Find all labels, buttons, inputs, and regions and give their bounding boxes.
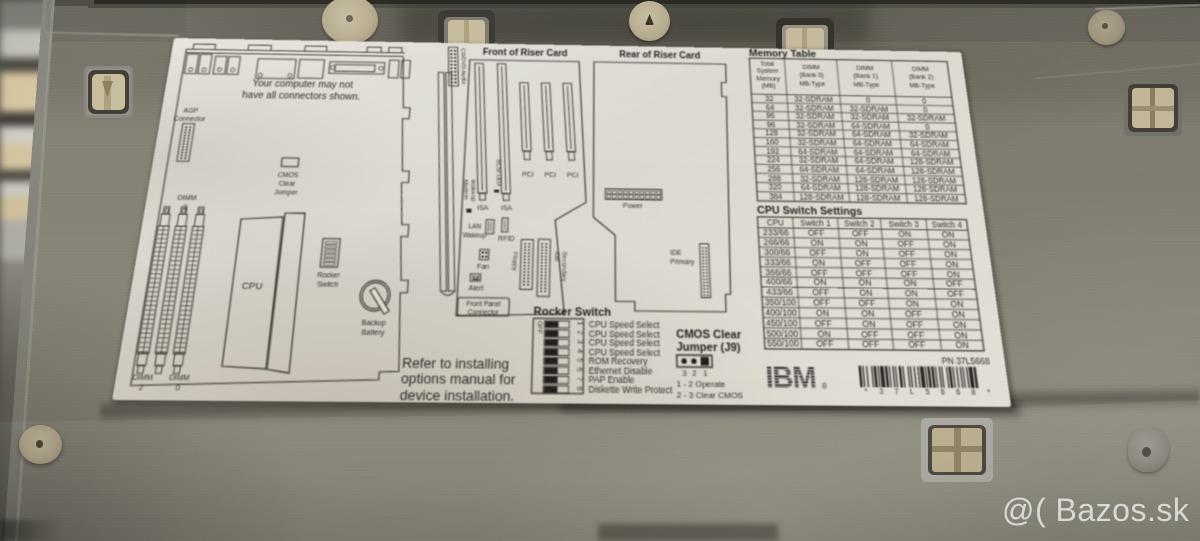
svg-text:OFF: OFF — [862, 339, 881, 350]
svg-text:ISA: ISA — [501, 205, 513, 213]
svg-text:ON: ON — [944, 249, 958, 259]
svg-text:have all connectors shown.: have all connectors shown. — [242, 90, 361, 102]
svg-text:SCSI LED: SCSI LED — [494, 159, 501, 186]
svg-text:ON: ON — [941, 230, 955, 240]
svg-text:64: 64 — [765, 103, 774, 112]
svg-text:OFF: OFF — [807, 228, 825, 238]
svg-text:233/66: 233/66 — [763, 228, 790, 238]
svg-text:PCI: PCI — [522, 171, 534, 178]
svg-text:2: 2 — [692, 370, 697, 378]
svg-text:ON: ON — [946, 269, 960, 279]
svg-text:500/100: 500/100 — [766, 328, 799, 339]
svg-text:1: 1 — [576, 321, 584, 326]
svg-text:OFF: OFF — [858, 298, 876, 308]
svg-text:300/66: 300/66 — [764, 247, 791, 257]
svg-text:Rear of Riser Card: Rear of Riser Card — [619, 50, 700, 61]
svg-text:CMOS Clear: CMOS Clear — [676, 329, 742, 342]
svg-text:2: 2 — [576, 330, 584, 335]
svg-text:400/66: 400/66 — [766, 277, 794, 287]
svg-text:7: 7 — [575, 377, 583, 382]
svg-text:(MB): (MB) — [761, 83, 776, 90]
svg-text:Fan: Fan — [477, 263, 490, 271]
svg-text:CPU: CPU — [241, 280, 263, 292]
svg-text:Battery: Battery — [361, 329, 386, 337]
svg-text:MB-Type: MB-Type — [799, 81, 826, 88]
svg-text:MB-Type: MB-Type — [853, 82, 880, 89]
svg-text:OFF: OFF — [904, 309, 923, 319]
svg-text:ON: ON — [813, 278, 827, 288]
svg-text:Jumper (J9): Jumper (J9) — [676, 341, 741, 355]
svg-text:®: ® — [822, 382, 828, 392]
svg-text:ON: ON — [858, 278, 872, 288]
svg-text:433/66: 433/66 — [766, 287, 794, 297]
svg-text:4: 4 — [575, 349, 583, 354]
svg-text:ON: ON — [812, 258, 826, 268]
svg-text:450/100: 450/100 — [766, 318, 799, 329]
svg-text:366/66: 366/66 — [765, 267, 792, 277]
svg-text:Floppy: Floppy — [511, 252, 518, 271]
svg-text:RFID: RFID — [498, 235, 515, 243]
svg-text:160: 160 — [765, 137, 779, 146]
svg-text:DIMM: DIMM — [911, 66, 929, 73]
svg-text:OFF: OFF — [898, 249, 916, 259]
svg-text:224: 224 — [766, 155, 780, 164]
svg-text:options manual for: options manual for — [400, 371, 515, 389]
svg-text:400/100: 400/100 — [765, 307, 798, 318]
svg-text:Jumper: Jumper — [274, 189, 299, 197]
svg-text:OFF: OFF — [851, 229, 869, 239]
svg-text:Wakeup: Wakeup — [462, 233, 487, 240]
svg-text:8: 8 — [575, 386, 583, 391]
svg-text:Rocker: Rocker — [317, 272, 341, 280]
svg-text:128-SDRAM: 128-SDRAM — [914, 194, 959, 204]
svg-text:333/66: 333/66 — [765, 257, 792, 267]
svg-text:Your computer may not: Your computer may not — [252, 78, 354, 89]
svg-text:System: System — [757, 68, 779, 75]
svg-text:Total: Total — [760, 61, 774, 68]
svg-text:AGP: AGP — [183, 107, 198, 114]
svg-text:Switch 3: Switch 3 — [888, 219, 919, 229]
svg-text:(Bank 0): (Bank 0) — [799, 72, 824, 79]
svg-text:ON: ON — [810, 238, 824, 248]
svg-text:Backup: Backup — [361, 319, 386, 327]
svg-text:96: 96 — [766, 120, 775, 129]
svg-text:DIMM: DIMM — [177, 195, 197, 203]
svg-text:128-SDRAM: 128-SDRAM — [855, 193, 900, 203]
svg-text:96: 96 — [766, 111, 775, 120]
svg-text:ON: ON — [859, 288, 873, 298]
svg-text:OFF: OFF — [812, 288, 830, 298]
svg-text:288: 288 — [768, 173, 782, 182]
svg-text:OFF: OFF — [945, 279, 963, 289]
svg-text:PCI: PCI — [544, 172, 556, 179]
svg-text:Clear: Clear — [278, 180, 296, 188]
svg-text:OFF: OFF — [809, 248, 827, 258]
svg-text:Alert: Alert — [468, 285, 483, 293]
svg-text:IDE: IDE — [553, 251, 560, 262]
svg-text:Front Panel: Front Panel — [466, 301, 501, 308]
svg-text:MB-Type: MB-Type — [909, 83, 936, 90]
svg-text:ON: ON — [905, 299, 919, 309]
svg-text:DIMM: DIMM — [132, 374, 153, 383]
svg-text:ON: ON — [904, 289, 918, 299]
svg-text:Front of Riser Card: Front of Riser Card — [483, 47, 568, 58]
svg-text:OFF: OFF — [861, 329, 880, 340]
svg-text:550/100: 550/100 — [767, 338, 800, 349]
svg-text:320: 320 — [768, 182, 782, 192]
svg-text:(Bank 1): (Bank 1) — [853, 73, 878, 80]
svg-text:192: 192 — [766, 146, 780, 155]
svg-text:ON: ON — [955, 340, 970, 351]
svg-text:ON: ON — [942, 240, 956, 250]
svg-text:Connector: Connector — [468, 310, 499, 317]
svg-text:Wakeup: Wakeup — [469, 180, 476, 202]
svg-text:3: 3 — [682, 370, 687, 378]
svg-text:Power: Power — [623, 202, 643, 210]
svg-text:PCI: PCI — [567, 172, 579, 179]
svg-text:OFF: OFF — [899, 259, 917, 269]
svg-text:OFF: OFF — [535, 321, 542, 335]
svg-text:ON: ON — [854, 239, 868, 249]
svg-text:384: 384 — [769, 192, 783, 202]
svg-text:256: 256 — [767, 164, 781, 173]
svg-text:OFF: OFF — [814, 318, 832, 329]
svg-text:Rocker Switch: Rocker Switch — [533, 306, 611, 319]
svg-text:0: 0 — [866, 96, 871, 105]
svg-text:device installation.: device installation. — [399, 387, 514, 405]
svg-text:OFF: OFF — [855, 268, 873, 278]
svg-text:OFF: OFF — [906, 319, 925, 329]
svg-text:Diskette Write Protect: Diskette Write Protect — [588, 384, 673, 396]
svg-text:Modem: Modem — [462, 180, 469, 200]
svg-text:ON: ON — [862, 319, 876, 329]
svg-text:Primary: Primary — [670, 258, 695, 266]
svg-text:ON: ON — [861, 308, 875, 318]
svg-text:350/100: 350/100 — [764, 297, 797, 308]
svg-text:Secondary: Secondary — [560, 252, 567, 282]
svg-text:DIMM: DIMM — [802, 64, 820, 71]
svg-text:IDE: IDE — [670, 249, 682, 257]
svg-text:ON: ON — [898, 229, 912, 239]
svg-text:OFF: OFF — [897, 239, 915, 249]
svg-text:ON: ON — [951, 309, 966, 319]
svg-text:Switch 1: Switch 1 — [800, 218, 831, 228]
svg-text:Memory: Memory — [756, 76, 781, 83]
svg-text:1 - 2 Operate: 1 - 2 Operate — [676, 378, 725, 389]
svg-text:OFF: OFF — [946, 289, 965, 299]
svg-text:ON: ON — [855, 248, 869, 258]
svg-text:OFF: OFF — [908, 340, 927, 351]
svg-text:32: 32 — [765, 94, 774, 103]
svg-text:3: 3 — [576, 340, 584, 345]
svg-text:1: 1 — [703, 370, 708, 378]
svg-text:PN 37L5668: PN 37L5668 — [941, 356, 990, 367]
svg-text:OFF: OFF — [810, 268, 828, 278]
svg-text:OFF: OFF — [900, 269, 918, 279]
svg-text:DIMM: DIMM — [169, 374, 190, 383]
svg-text:128-SDRAM: 128-SDRAM — [799, 192, 844, 202]
svg-text:CD/DVD Audio: CD/DVD Audio — [459, 48, 466, 84]
svg-text:ON: ON — [950, 299, 964, 309]
svg-text:OFF: OFF — [907, 329, 926, 340]
svg-text:ON: ON — [817, 328, 831, 339]
svg-text:CMOS: CMOS — [277, 172, 299, 180]
svg-text:ON: ON — [952, 320, 967, 330]
svg-text:2 - 3 Clear CMOS: 2 - 3 Clear CMOS — [677, 389, 744, 400]
svg-text:ON: ON — [816, 308, 830, 318]
svg-text:6: 6 — [575, 367, 583, 372]
svg-text:266/66: 266/66 — [763, 237, 790, 247]
svg-text:5: 5 — [575, 358, 583, 363]
svg-text:IBM: IBM — [765, 361, 817, 395]
svg-text:ON: ON — [945, 259, 959, 269]
svg-text:OFF: OFF — [813, 298, 831, 308]
svg-text:CPU: CPU — [767, 218, 785, 228]
svg-text:LAN: LAN — [468, 224, 481, 231]
svg-text:Connector: Connector — [173, 116, 207, 124]
svg-text:(Bank 2): (Bank 2) — [909, 74, 934, 81]
svg-text:Switch: Switch — [317, 281, 339, 289]
svg-text:ON: ON — [954, 330, 969, 341]
svg-text:ISA: ISA — [477, 204, 489, 212]
svg-text:DIMM: DIMM — [856, 65, 874, 72]
svg-text:Switch 2: Switch 2 — [844, 219, 875, 229]
svg-text:OFF: OFF — [854, 258, 872, 268]
svg-text:OFF: OFF — [816, 339, 835, 350]
svg-text:128: 128 — [765, 129, 779, 138]
svg-text:Switch 4: Switch 4 — [931, 220, 962, 230]
svg-text:ON: ON — [903, 279, 917, 289]
